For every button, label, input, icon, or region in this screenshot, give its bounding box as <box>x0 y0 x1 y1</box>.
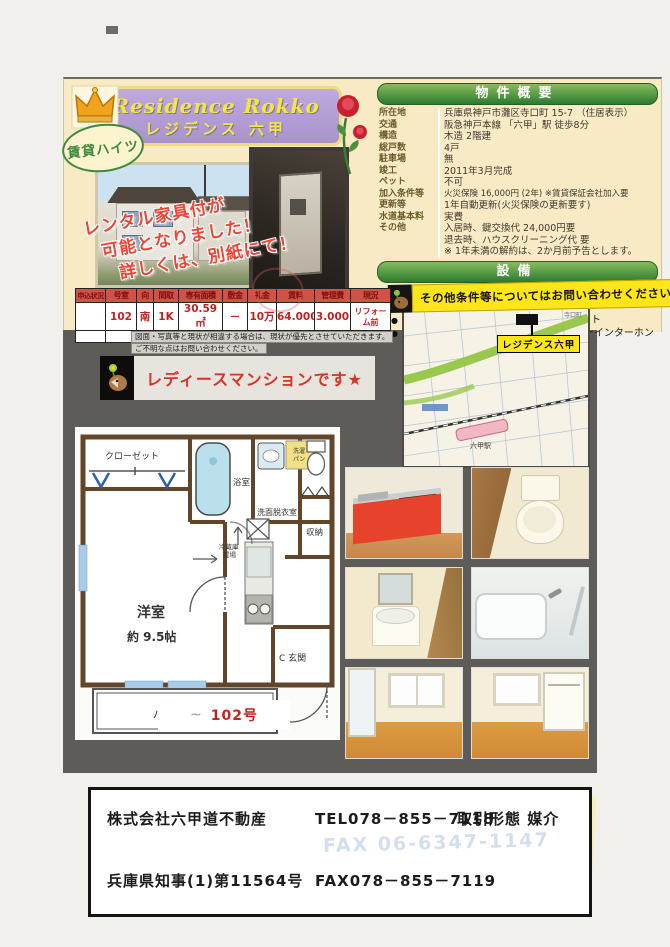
company-name: 株式会社六甲道不動産 <box>107 808 267 829</box>
cell-room-no: 102 <box>106 303 137 331</box>
summary-label: 構造 <box>377 131 438 143</box>
cell-application-status <box>76 303 106 331</box>
floor-plan-drawing: クローゼット 浴室 洗面脱衣室 洗濯 パン 収納 冷蔵庫 置場 洋室 約 9.5… <box>75 427 340 740</box>
cell-facing: 南 <box>137 303 154 331</box>
map-property-label: レジデンス六甲 <box>497 335 580 353</box>
note-line: 図面・写真等と現状が相違する場合は、現状が優先とさせていただきます。 <box>131 331 393 343</box>
cell-mgmt-fee: 3.000 <box>315 303 351 331</box>
note-line: ご不明な点はお問い合わせください。 <box>131 343 267 355</box>
summary-label: 加入条件等 <box>377 189 438 201</box>
summary-value: 実費 <box>438 212 658 224</box>
station-label: 六甲駅 <box>470 441 491 450</box>
col-application-status: 申込状況 <box>76 289 106 303</box>
ladies-banner-text: レディースマンションです★ <box>134 356 375 400</box>
cell-deposit: － <box>223 303 248 331</box>
summary-table: 所在地兵庫県神戸市灘区寺口町 15-7 （住居表示） 交通阪急神戸本線 「六甲」… <box>377 108 658 258</box>
summary-value: 無 <box>438 154 658 166</box>
toilet-tank <box>521 475 560 500</box>
label-bathroom: 浴室 <box>233 477 251 488</box>
cell-area: 30.59㎡ <box>179 303 223 331</box>
room-window <box>388 673 445 708</box>
washbasin-photo <box>345 567 463 659</box>
label-room: 洋室 <box>137 604 165 621</box>
col-area: 専有面積 <box>179 289 223 303</box>
summary-label <box>377 246 438 258</box>
equipment-header: 設備 <box>377 261 658 283</box>
summary-label: ペット <box>377 177 438 189</box>
mole-mascot-icon <box>388 285 413 313</box>
cell-layout: 1K <box>154 303 179 331</box>
inquiry-text: その他条件等についてはお問い合わせください <box>412 279 670 313</box>
deal-type: 取引形態 媒介 <box>457 808 559 829</box>
property-name-en: Residence Rokko <box>112 94 319 118</box>
toilet-photo <box>471 467 589 559</box>
pointer-squiggle: ~ <box>190 707 203 723</box>
summary-value: 火災保険 16,000円 (2年) ※賃貸保証会社加入要 <box>438 189 658 201</box>
label-laundry: 洗濯 <box>293 447 305 455</box>
location-map: 六甲駅 レジデンス六甲 寺口町 <box>402 306 590 468</box>
summary-label <box>377 235 438 247</box>
summary-value: 入居時、鍵交換代 24,000円要 <box>438 223 658 235</box>
col-room-no: 号室 <box>106 289 137 303</box>
summary-header: 物件概要 <box>377 83 658 105</box>
summary-label: 竣工 <box>377 166 438 178</box>
summary-value: 木造 2階建 <box>438 131 658 143</box>
map-drawing: 六甲駅 <box>404 308 588 466</box>
ghost-fax-artifact: FAX 06-6347-1147 <box>323 829 550 857</box>
license-number: 兵庫県知事(1)第11564号 <box>107 870 303 891</box>
bathtub <box>475 593 546 640</box>
summary-label: 所在地 <box>377 108 438 120</box>
room-photo-2 <box>471 667 589 759</box>
company-fax: FAX078－855－7119 <box>315 870 496 891</box>
vanity-wall <box>427 568 462 658</box>
col-facing: 向 <box>137 289 154 303</box>
label-laundry: パン <box>293 456 305 463</box>
col-condition: 現況 <box>351 289 391 303</box>
open-closet <box>543 672 584 732</box>
property-name-jp: レジデンス 六甲 <box>145 118 287 139</box>
summary-value: 兵庫県神戸市灘区寺口町 15-7 （住居表示） <box>438 108 658 120</box>
shower-bar <box>569 586 585 635</box>
vanity-bowl <box>376 608 415 624</box>
kitchen-photo <box>345 467 463 559</box>
col-mgmt-fee: 管理費 <box>315 289 351 303</box>
label-fridge: 冷蔵庫 <box>219 542 239 551</box>
summary-value: 阪急神戸本線 「六甲」駅 徒歩8分 <box>438 120 658 132</box>
col-layout: 間取 <box>154 289 179 303</box>
label-storage: 収納 <box>306 527 323 538</box>
label-room-size: 約 9.5帖 <box>127 629 176 644</box>
summary-label: 更新等 <box>377 200 438 212</box>
summary-value: 2011年3月完成 <box>438 166 658 178</box>
bathroom-photo <box>471 567 589 659</box>
summary-label: 駐車場 <box>377 154 438 166</box>
toilet-wall <box>472 468 511 558</box>
rent-table-notes: 図面・写真等と現状が相違する場合は、現状が優先とさせていただきます。 ご不明な点… <box>131 331 393 354</box>
company-info-box: FAX 06-6347-1147 株式会社六甲道不動産 TEL078－855－7… <box>88 787 592 917</box>
col-deposit: 敷金 <box>223 289 248 303</box>
label-washroom: 洗面脱衣室 <box>257 507 297 517</box>
shower-head <box>548 588 563 599</box>
vanity-mirror <box>378 573 412 606</box>
bullet-icon: ● <box>391 314 398 328</box>
label-entrance: C 玄関 <box>279 652 306 664</box>
label-closet: クローゼット <box>105 450 159 462</box>
summary-value: 退去時、ハウスクリーニング代 要 <box>438 235 658 247</box>
map-town-label: 寺口町 <box>564 310 582 319</box>
scan-artifact <box>106 26 118 34</box>
label-fridge: 置場 <box>223 550 237 559</box>
room-photo-1 <box>345 667 463 759</box>
summary-value: 1年自動更新(火災保険の更新要す) <box>438 200 658 212</box>
room-window <box>493 673 541 706</box>
summary-value: 4戸 <box>438 143 658 155</box>
inquiry-banner: その他条件等についてはお問い合わせください <box>388 279 670 313</box>
mole-flower-icon <box>100 356 134 400</box>
ladies-mansion-banner: レディースマンションです★ <box>100 356 375 400</box>
summary-label: 水道基本料 <box>377 212 438 224</box>
summary-value: 不可 <box>438 177 658 189</box>
floor-plan: クローゼット 浴室 洗面脱衣室 洗濯 パン 収納 冷蔵庫 置場 洋室 約 9.5… <box>75 427 340 740</box>
property-flyer: Residence Rokko レジデンス 六甲 賃貸ハイツ レンタル家具付が … <box>0 0 670 947</box>
toilet-seat <box>523 506 555 533</box>
cell-condition: リフォーム前 <box>351 303 391 331</box>
summary-label: 交通 <box>377 120 438 132</box>
unit-number-label: ~ 102号 <box>158 700 290 730</box>
summary-value: ※ 1年未満の解約は、2か月前予告とします。 <box>438 246 658 258</box>
glass-door <box>348 668 375 737</box>
roses-icon <box>332 88 368 180</box>
interior-photos <box>345 467 589 759</box>
summary-label: 総戸数 <box>377 143 438 155</box>
summary-label: その他 <box>377 223 438 235</box>
